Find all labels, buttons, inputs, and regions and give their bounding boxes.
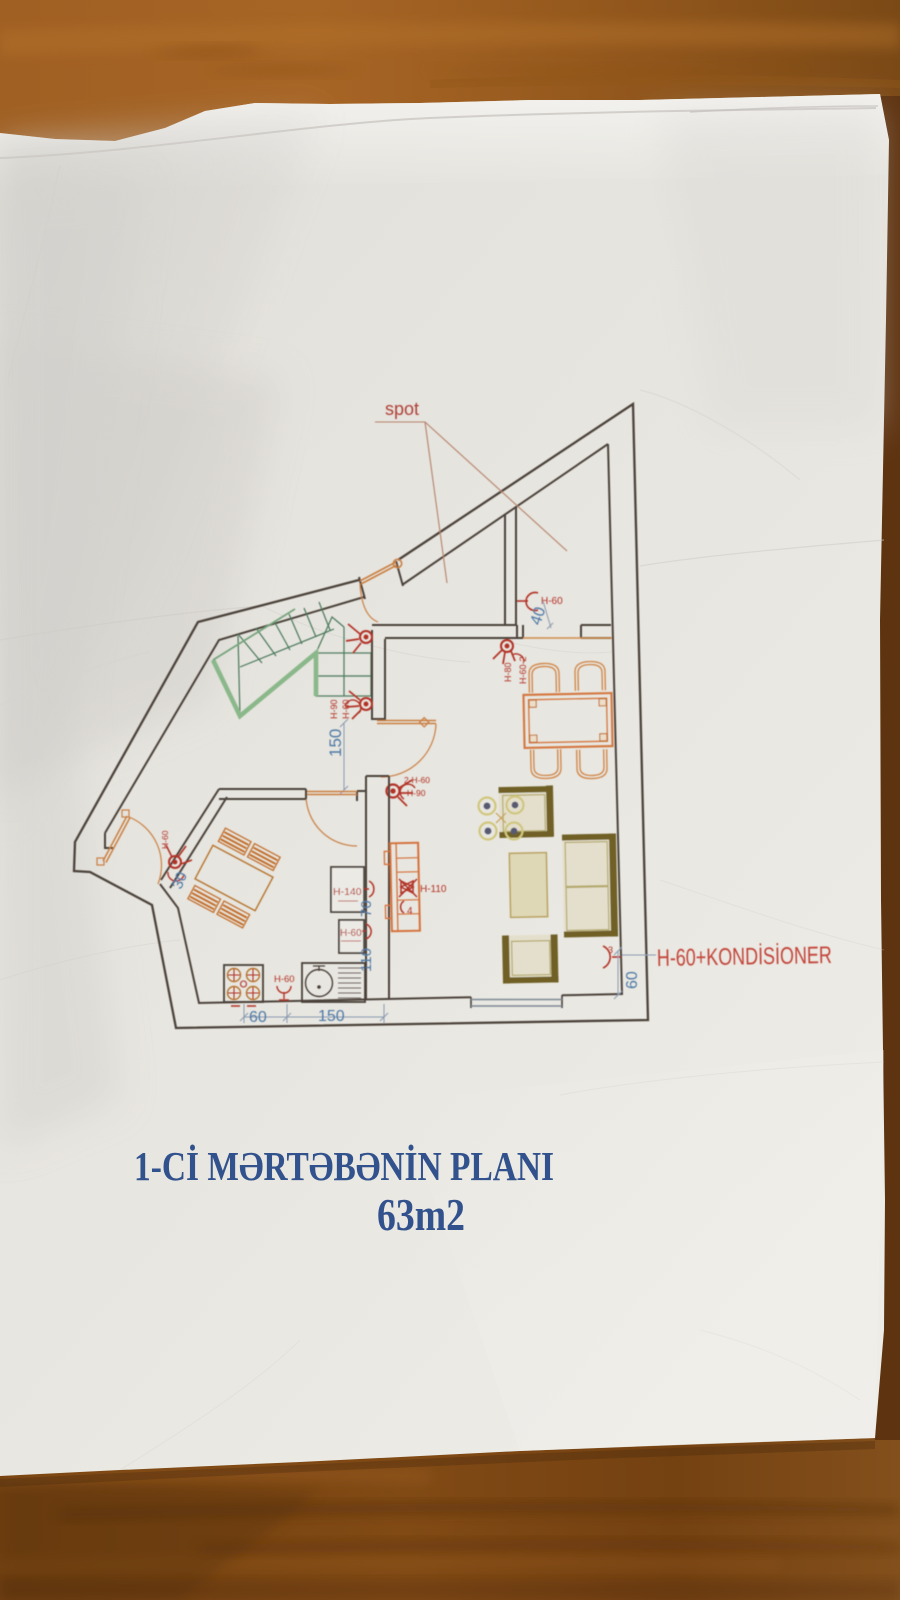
- svg-text:H-140: H-140: [333, 886, 362, 898]
- svg-text:70: 70: [358, 900, 375, 917]
- svg-text:1-Cİ MƏRTƏBƏNİN PLANI: 1-Cİ MƏRTƏBƏNİN PLANI: [134, 1143, 554, 1189]
- svg-text:H-60: H-60: [274, 974, 295, 985]
- svg-text:spot: spot: [385, 399, 419, 419]
- svg-text:H-80: H-80: [503, 662, 513, 682]
- svg-text:2-H-60: 2-H-60: [404, 775, 430, 785]
- svg-text:H-90: H-90: [407, 788, 426, 798]
- svg-text:H-60: H-60: [160, 830, 170, 849]
- svg-text:H-110: H-110: [420, 884, 447, 895]
- svg-text:3: 3: [608, 945, 613, 955]
- svg-text:H-60: H-60: [340, 928, 362, 939]
- svg-text:60: 60: [624, 971, 641, 989]
- svg-text:150: 150: [326, 729, 345, 757]
- svg-text:110: 110: [358, 948, 375, 972]
- svg-text:H-60-2: H-60-2: [518, 656, 528, 684]
- svg-text:150: 150: [318, 1008, 345, 1025]
- svg-text:H-60+KONDİSİONER: H-60+KONDİSİONER: [657, 942, 832, 972]
- svg-text:H-60: H-60: [341, 699, 351, 719]
- svg-text:H-90: H-90: [329, 699, 339, 719]
- svg-text:63m2: 63m2: [377, 1189, 465, 1240]
- svg-text:4: 4: [407, 906, 413, 917]
- svg-text:60: 60: [249, 1009, 267, 1026]
